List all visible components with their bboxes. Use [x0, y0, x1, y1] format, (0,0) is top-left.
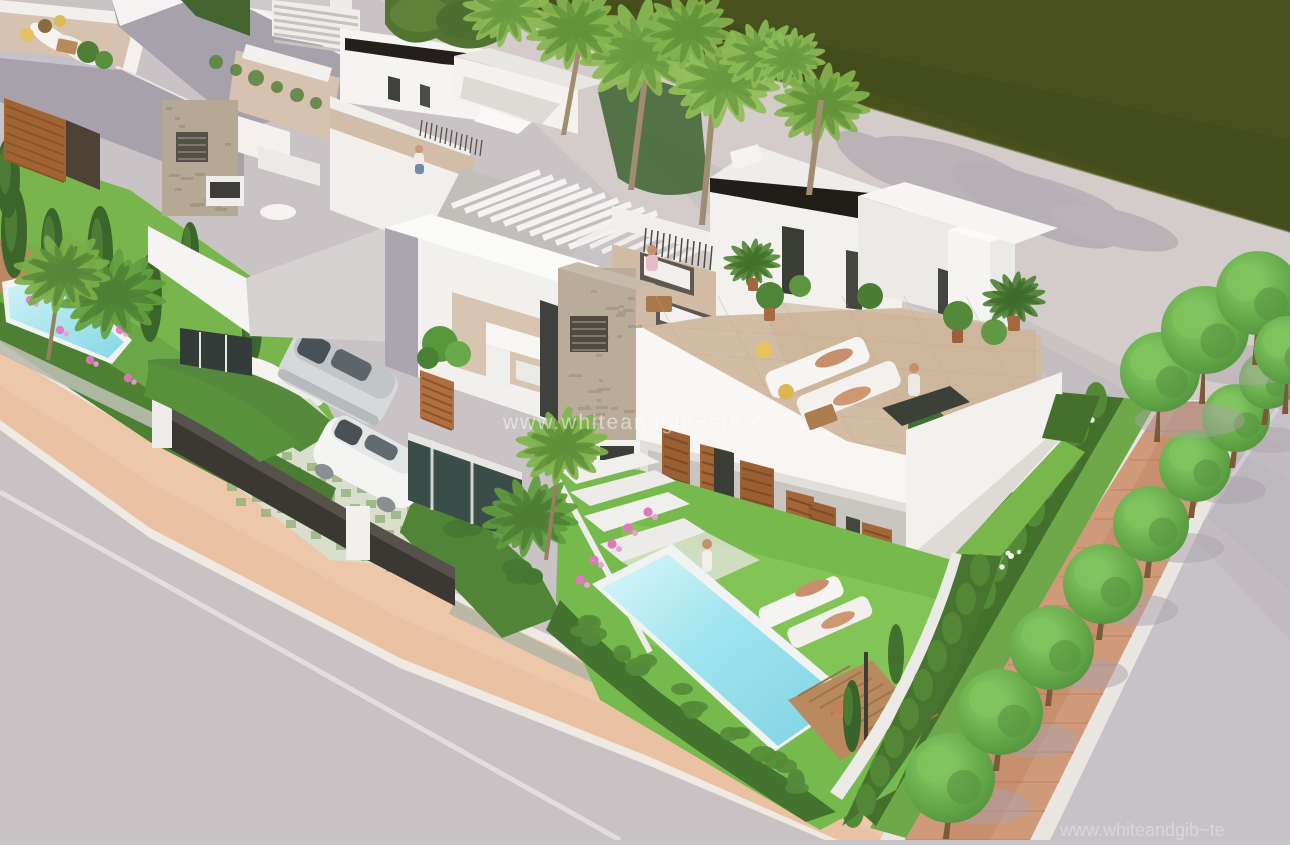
svg-text:www.whiteandgib~te: www.whiteandgib~te: [1059, 820, 1225, 840]
svg-text:www.whiteandgib~ste.c: www.whiteandgib~ste.c: [502, 411, 764, 434]
